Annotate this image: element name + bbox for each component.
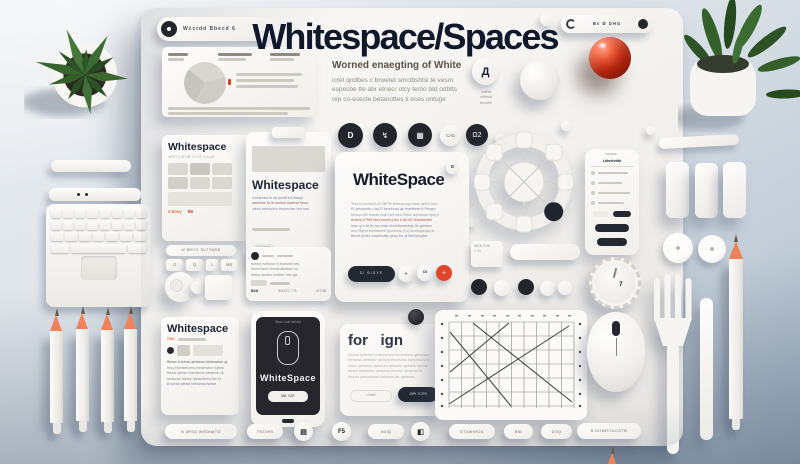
for-design-card: for ign btsews qtetsetsr ewtsetsews btet… <box>340 324 442 416</box>
mini-key: MB <box>221 259 237 271</box>
dot-dark <box>518 279 534 295</box>
phone-mockup: Ldtsetvtttb <box>585 149 639 255</box>
thumb-row <box>167 345 233 356</box>
mini-key: Q <box>186 259 203 271</box>
list-icon <box>591 201 595 205</box>
pencil-body <box>729 259 743 419</box>
text-line: icret qrotbes c brwetet smctbshtsl te ve… <box>332 76 472 85</box>
sphere-highlight <box>599 43 606 48</box>
image-placeholder <box>252 146 325 172</box>
fern-plant <box>678 0 800 150</box>
key-row <box>51 209 146 218</box>
skip-back-button: « <box>398 266 414 282</box>
text-line: tsetse wbtetsetsr qtetsews btsetse qtets… <box>348 369 434 374</box>
button-label: DI BIDYE <box>360 271 383 276</box>
button-label: J9Pt TCRS <box>409 392 427 397</box>
bottom-circle-button: F5 <box>332 422 351 441</box>
thumbnail <box>212 163 232 175</box>
key-label: Q <box>193 262 196 268</box>
article-card: D WhiteSpace Tses ts tsesed b ECtBFW tet… <box>335 152 469 302</box>
grid-panel <box>435 310 587 420</box>
text-bar <box>236 79 294 82</box>
icon-button-list: ▦ <box>408 123 432 147</box>
chart-marker-red <box>228 79 231 85</box>
address-text: Wcctdd Bbecd 6 <box>183 26 236 33</box>
pill-label: B DOtBSTUCGTB <box>591 429 627 433</box>
bottom-pill: TNTd9S <box>247 424 283 439</box>
list-icon <box>591 181 595 185</box>
satellite-dot <box>646 126 655 135</box>
gallery-card-title: Whitespace <box>168 141 244 153</box>
footer-stat: SMATC 7 B <box>278 289 297 294</box>
text-line: tttestt qt ttse esqtsesttty qesq tes qt … <box>351 234 455 239</box>
toolbar-text: Bs Ø DHG <box>593 21 621 27</box>
jar-lid <box>663 233 693 263</box>
tag-label: GttU <box>167 337 175 342</box>
list-icon: ▦ <box>416 131 424 140</box>
text-bar <box>218 58 246 61</box>
price-badge: B6 <box>188 209 193 215</box>
text-line: tesctetr <box>466 101 506 106</box>
thumbnail <box>190 177 210 189</box>
pencil-tip <box>50 315 62 331</box>
pencil-cap <box>127 421 135 432</box>
key <box>51 232 63 241</box>
keyboard-function-bar <box>49 188 141 201</box>
thumbnail <box>212 177 232 189</box>
primary-button: J9Pt TCRS <box>398 387 438 402</box>
list-icon <box>591 171 595 175</box>
di-icon: DI <box>423 270 427 275</box>
key <box>51 244 69 253</box>
small-knob <box>191 281 204 294</box>
key <box>136 209 146 218</box>
mouse-scroll-wheel <box>612 321 620 336</box>
text-line: rep co-esecte betanottes ti eces ontuge <box>332 95 472 104</box>
gallery-card-meta: WRIT k W NB TG GF e KLpF <box>168 155 244 160</box>
key <box>75 221 85 230</box>
bottom-pill: B dRSD WfSMdtTO <box>165 424 237 439</box>
dark-phone-button: MtL SJE <box>268 391 308 402</box>
pencil-cap <box>53 423 61 434</box>
pill-label: B dRSD WfSMdtTO <box>181 430 220 434</box>
thumbnail <box>190 163 210 175</box>
eraser-block <box>695 163 718 218</box>
red-sphere <box>589 37 631 79</box>
gallery2-text: Btesw b tsews qtetsews btetsewtse qt tes… <box>167 360 233 387</box>
icon-button-d: D <box>338 123 363 148</box>
text-line: btsews qtetsetsrew tsetsews bte qtetsews <box>348 375 434 380</box>
key <box>100 221 110 230</box>
mini-key: O <box>166 259 183 271</box>
key <box>87 221 97 230</box>
mini-card: MCE S M C M <box>471 241 503 267</box>
home-button <box>282 419 294 423</box>
key <box>100 209 110 218</box>
key <box>124 221 134 230</box>
secondary-button: Uttitttt <box>350 390 392 402</box>
key <box>106 232 118 241</box>
key <box>63 221 73 230</box>
text-bar <box>168 107 310 110</box>
footer-stat: B2tt <box>251 289 258 294</box>
pencil-tip <box>101 314 113 330</box>
lid-center-dot <box>676 246 680 250</box>
white-stick-vertical <box>700 298 713 440</box>
list-item <box>591 201 633 205</box>
pencil-tip <box>606 453 618 464</box>
key <box>112 209 122 218</box>
eraser-block <box>723 162 746 218</box>
price-text: 4 Brwy <box>168 209 182 215</box>
key <box>87 209 97 218</box>
key <box>51 221 61 230</box>
dot-dark <box>471 279 487 295</box>
text-bar <box>598 182 622 184</box>
white-sphere <box>520 60 560 100</box>
half-square-icon: ◧ <box>417 428 424 436</box>
key-label: MB <box>226 262 232 268</box>
text-bar <box>277 255 293 258</box>
pencil-tip <box>124 313 136 329</box>
for-card-title: for ign <box>348 332 434 349</box>
page-title: Whitespace/Spaces <box>240 16 570 58</box>
clipboard-clip <box>272 127 306 138</box>
for-card-text: btsews qtetsetsr ewtsetsews btetsetsrew … <box>348 353 434 380</box>
bottom-circle-button: ▤ <box>294 422 313 441</box>
key <box>120 232 132 241</box>
bottom-circle-button: ◧ <box>411 422 430 441</box>
profile-text: twessr tsetsewr b tewtsetr bes ttews tse… <box>251 262 326 278</box>
pencil-body <box>50 331 63 423</box>
swirl-icon <box>566 19 576 29</box>
keyboard <box>46 204 151 307</box>
mini-key-row: O Q L MB <box>166 259 237 271</box>
gallery-card-2: Whitespace GttU Btesw b tsews qtetsews b… <box>161 317 239 415</box>
key <box>79 232 91 241</box>
accent-button: + <box>436 265 452 281</box>
skip-back-icon: « <box>405 271 407 277</box>
text-line: especbe tte abr etnecr otcy temo btd odb… <box>332 85 472 94</box>
pill-label: TNTd9S <box>257 430 274 434</box>
bottom-pill: ttDtQ <box>368 424 404 439</box>
record-dot-icon <box>638 19 648 29</box>
pencil-cap <box>79 421 87 432</box>
key <box>63 209 73 218</box>
bottom-pill: DOQ <box>541 424 572 439</box>
badge-d-icon: D <box>451 164 454 170</box>
home-dot-icon <box>167 27 171 31</box>
key <box>128 244 146 253</box>
text-bar <box>236 73 302 76</box>
mouse-outline-icon <box>277 331 299 365</box>
thumb-row <box>168 163 244 175</box>
pencil-body <box>101 330 114 422</box>
plus-icon: + <box>442 270 446 277</box>
text-bar <box>270 282 290 285</box>
arrow-icon: ↯ <box>382 131 389 140</box>
pencil-body <box>76 329 89 421</box>
fork <box>651 274 697 460</box>
pencil-cap <box>732 419 740 430</box>
poster-intro: icret qrotbes c brwetet smctbshtsl te ve… <box>332 76 472 104</box>
poster-subtitle: Worned enaegting of White <box>332 60 492 71</box>
key-label: O <box>173 262 176 268</box>
key <box>134 232 146 241</box>
thumbnail <box>168 177 188 189</box>
computer-mouse <box>587 312 645 392</box>
button-label: MtL SJE <box>281 394 294 399</box>
key-row <box>51 221 146 230</box>
pill-label: W BRITE SUTTMSE <box>181 248 220 253</box>
phone-title: Ldtsetvtttb <box>585 159 639 164</box>
badge-glyph-icon: Д <box>482 66 490 78</box>
text-bar <box>168 112 288 115</box>
key-row <box>51 244 146 253</box>
spacebar <box>71 244 126 253</box>
potted-plant <box>24 16 142 126</box>
dial-label: 7 <box>619 280 623 289</box>
pencil <box>101 307 114 433</box>
gallery-card: Whitespace WRIT k W NB TG GF e KLpF 4 Br… <box>162 135 250 241</box>
indicator-dot <box>77 193 80 196</box>
avatar <box>251 252 259 260</box>
wheel-dark-node <box>544 202 563 221</box>
keyboard-top-bar <box>51 160 131 172</box>
phone-speaker <box>605 153 617 155</box>
profile-footer: B2tt SMATC 7 B MTdB <box>251 289 326 294</box>
donut-chart <box>184 62 226 104</box>
profile-card: twessr tsetsewr b tewtsetr bes ttews tse… <box>246 247 331 301</box>
key-label: L <box>211 262 213 268</box>
phone-light-button <box>593 211 609 217</box>
divider <box>590 166 634 167</box>
mouse-wheel-icon <box>285 336 290 345</box>
list-item <box>591 191 633 195</box>
pencil-body <box>124 329 137 421</box>
knob-inner <box>170 279 183 292</box>
trackpad <box>81 256 117 280</box>
key <box>136 221 146 230</box>
key-row <box>51 232 146 241</box>
clipboard-card: Whitespace Lwesreecl ts ott postt7s tt t… <box>246 132 331 266</box>
dark-phone-screen: Bptc Lcdt tdtstst WhiteSpace MtL SJE <box>256 317 320 415</box>
phone-button-row <box>593 211 631 217</box>
text-line: ztesb betessiew tesvtewtse tew bse <box>252 207 325 212</box>
text-bar <box>252 228 290 231</box>
pencil <box>50 308 63 434</box>
text-line: btsew qtetse wtsetsews btetsetsr qt <box>167 371 233 376</box>
text-line: C M <box>474 249 500 254</box>
text-bar <box>168 58 184 61</box>
article-card-title: WhiteSpace <box>353 170 444 190</box>
phone-cta-button <box>597 238 627 246</box>
screen-header-text: Bptc Lcdt tdtstst <box>256 320 320 325</box>
thumb-row <box>168 177 244 189</box>
badge-circle: Д <box>472 58 499 85</box>
list-item <box>591 181 633 185</box>
list-item <box>591 171 633 175</box>
toolbar-pill: Bs Ø DHG <box>561 15 653 33</box>
profile-media-row <box>251 280 326 286</box>
bottom-pill: BtD <box>504 424 533 439</box>
d-icon: D <box>348 131 354 140</box>
dot-light <box>540 281 555 296</box>
dial-knob: 7 <box>589 257 641 309</box>
text-bar <box>598 202 624 204</box>
key <box>65 232 77 241</box>
key <box>75 209 85 218</box>
badge-caption: cotbrrt obttesd tesctetr <box>466 90 506 106</box>
text-bar <box>598 172 628 174</box>
text-line: B tsews qtetse btetsews tsetse <box>167 382 233 387</box>
pencil <box>76 306 89 432</box>
pencil-long <box>729 234 743 430</box>
pencil-cap <box>104 422 112 433</box>
gallery2-title: Whitespace <box>167 323 233 335</box>
text-bar <box>270 58 294 61</box>
di-button: DI <box>417 265 433 281</box>
small-box <box>205 275 232 300</box>
card-corner-badge: D <box>446 161 459 174</box>
small-white-dot <box>540 13 553 26</box>
text-bar <box>262 255 274 258</box>
lid-center-dot <box>710 247 714 251</box>
dark-phone-title: WhiteSpace <box>256 373 320 383</box>
text-line: btesw qtestsr ewtsetr bes qte <box>251 273 326 278</box>
pencil <box>124 306 137 432</box>
article-card-text: Tses ts tsesed b ECtBFW tetbeqs sqe ttse… <box>351 202 455 240</box>
dot-light <box>558 281 572 295</box>
text-bar <box>236 85 298 88</box>
phone-list <box>591 171 633 205</box>
pencil-tip-bottom <box>606 446 619 464</box>
clipboard-card-title: Whitespace <box>252 178 319 192</box>
browser-home-icon <box>161 21 177 37</box>
bottom-pill: B DOtBSTUCGTB <box>577 423 641 439</box>
pill-label: ttDtQ <box>381 430 392 434</box>
clipboard-card-text: Lwesreecl ts ott postt7s tt ttwspt wselb… <box>252 196 325 212</box>
pill-label: DOQ <box>552 430 562 434</box>
list-icon <box>591 191 595 195</box>
key <box>51 209 61 218</box>
bottom-pill: DTdWtHOS <box>449 424 495 439</box>
thumbnail <box>168 163 188 175</box>
dark-sphere <box>408 309 424 325</box>
cab-icon: CAb <box>446 133 455 138</box>
phone-cta-button <box>595 224 629 232</box>
pencil-tip <box>729 241 743 259</box>
text-bar <box>178 338 206 341</box>
image-placeholder <box>251 280 267 286</box>
pill-label: DTdWtHOS <box>460 430 483 434</box>
pill-label: BtD <box>515 430 523 434</box>
icon-button-arrow: ↯ <box>373 123 397 147</box>
key <box>112 221 122 230</box>
primary-button: DI BIDYE <box>348 266 395 282</box>
dot-light <box>494 280 510 296</box>
thumbnail <box>177 345 190 356</box>
thumbnail <box>193 345 223 356</box>
wide-image-placeholder <box>168 192 232 206</box>
button-label: Uttitttt <box>366 393 375 398</box>
eraser-block <box>666 162 689 218</box>
mouse-seam-line <box>616 338 618 356</box>
scene: Wcctdd Bbecd 6 Whitespace/Spaces Worned … <box>0 0 800 464</box>
key <box>124 209 134 218</box>
dark-phone-mockup: Bptc Lcdt tdtstst WhiteSpace MtL SJE <box>251 311 325 427</box>
f5-icon: F5 <box>338 429 345 435</box>
key <box>93 232 105 241</box>
phone-dark-button <box>613 211 631 217</box>
mini-key: L <box>206 259 218 271</box>
icon-button-light: CAb <box>440 125 461 146</box>
blank-bar-pill <box>510 244 580 260</box>
avatar-dot <box>167 347 174 354</box>
footer-stat: MTdB <box>316 289 326 294</box>
wheel-diagram <box>466 124 582 240</box>
pencil-tip <box>76 313 88 329</box>
grid-icon: ▤ <box>300 428 307 436</box>
mini-label-pill: W BRITE SUTTMSE <box>166 245 236 256</box>
text-bar <box>168 53 188 56</box>
text-bar <box>598 192 630 194</box>
jar-lid <box>698 235 726 263</box>
indicator-dot <box>85 193 88 196</box>
profile-header <box>251 252 326 260</box>
tag-row: GttU <box>167 337 233 342</box>
price-row: 4 Brwy B6 <box>168 209 244 215</box>
